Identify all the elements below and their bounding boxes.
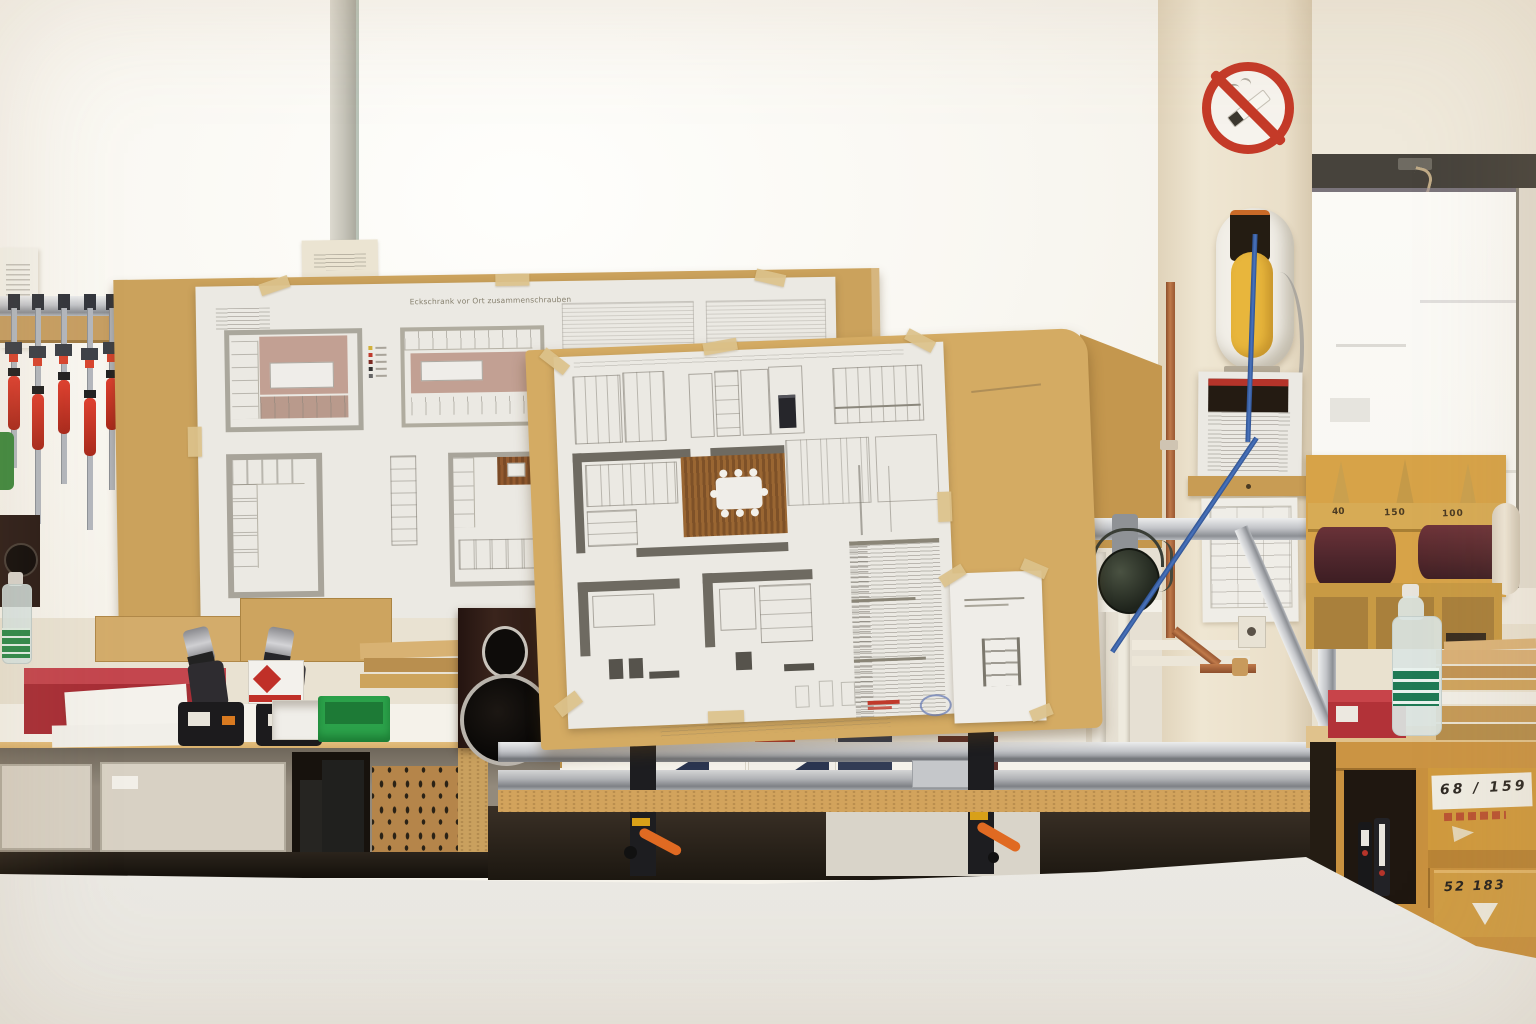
brass-fitting (1232, 658, 1248, 676)
drawer (0, 764, 92, 850)
water-bottle-right (1390, 584, 1442, 734)
drill-battery (178, 702, 244, 746)
storage-box-lower: 52 183 (1434, 870, 1536, 937)
cabinet-elevation (622, 371, 667, 443)
floor-plan (702, 569, 816, 679)
detail-sketch (819, 680, 834, 707)
floor-plan (224, 328, 364, 432)
blue-stamp (919, 694, 952, 717)
shelf-bar (1428, 850, 1536, 868)
kitchen-island-wood-floor (681, 453, 788, 537)
detail-sketch (841, 681, 856, 706)
cabinet-elevation (688, 373, 715, 438)
detail-sketch (795, 685, 810, 708)
dining-table (715, 476, 762, 510)
kitchen-floor-plan (572, 443, 788, 559)
red-logo (868, 699, 910, 713)
drawer-label (112, 776, 138, 789)
legend (368, 346, 391, 380)
floor-plan (875, 434, 940, 502)
green-bottle (0, 432, 14, 490)
clamp (80, 294, 100, 534)
white-tag (1472, 903, 1498, 925)
sheet-drawing (982, 637, 1022, 686)
speaker (458, 608, 548, 748)
cabinet-elevation (740, 369, 771, 436)
plank-pile (1436, 640, 1536, 740)
spec-column (849, 538, 946, 717)
water-bottle-left (0, 572, 32, 662)
clamp-handle (8, 376, 20, 430)
cabinet-elevation (572, 375, 623, 445)
box-label: 52 183 (1444, 878, 1506, 895)
blueprint-title: Eckschrank vor Ort zusammenschrauben (410, 295, 572, 307)
grit-label: 150 (1384, 508, 1406, 519)
clamp (28, 294, 48, 534)
tape-piece (754, 268, 786, 286)
cabinet-elevation (832, 365, 924, 425)
mullion-green-strip (356, 0, 359, 252)
clamp (54, 294, 74, 529)
building-line-2 (1336, 344, 1406, 347)
chipboard-edge (498, 790, 1338, 812)
outlet-box (1238, 616, 1266, 648)
drawer (100, 762, 286, 852)
bottle-label (1393, 668, 1439, 706)
tape-piece (937, 491, 952, 522)
cabinet-elevation (714, 370, 741, 437)
tweeter (482, 626, 528, 678)
floor-plan (578, 578, 684, 684)
title-block (216, 308, 270, 333)
screw-box (248, 660, 304, 704)
pillar-ledge (1188, 476, 1310, 496)
right-window-wall (1312, 0, 1536, 158)
floor-plan (400, 325, 546, 427)
bottle-label (2, 628, 30, 658)
binder (1358, 822, 1372, 894)
cabinet-elevation-oven (768, 365, 805, 434)
paper-roll (1492, 503, 1520, 595)
cordless-drill (178, 628, 248, 746)
sandpaper-roll (1314, 527, 1396, 585)
clamp-handle (58, 380, 70, 434)
note-text-lines (314, 254, 366, 271)
tape-piece (188, 427, 202, 457)
red-scribble (1444, 811, 1506, 821)
clamp-handle (84, 398, 96, 456)
tape-piece (554, 691, 583, 718)
front-blueprint (553, 342, 958, 729)
green-box (318, 696, 390, 742)
tape-piece (539, 347, 570, 375)
cabinet-elevation (390, 455, 417, 545)
detail-sheet (949, 570, 1046, 723)
binder (1374, 818, 1390, 896)
pipe-bracket (1160, 440, 1178, 450)
window-mullion (330, 0, 356, 252)
storage-box-upper: 68 / 159 (1428, 768, 1536, 852)
grit-label: 40 (1332, 507, 1345, 517)
no-smoking-sign (1202, 62, 1294, 154)
clamp-rack (0, 294, 122, 534)
window-tint-line (1312, 188, 1536, 192)
grit-label: 100 (1442, 509, 1464, 520)
building-block (1330, 398, 1370, 422)
oven (778, 395, 796, 429)
floor-plan (226, 453, 324, 598)
tape-piece (258, 275, 290, 296)
workshop-photo: Eckschrank vor Ort zusammenschrauben (0, 0, 1536, 1024)
tape-piece (495, 274, 529, 287)
tape-piece (708, 710, 744, 723)
clamp-handle (32, 394, 44, 450)
sandpaper-roll (1418, 525, 1502, 579)
